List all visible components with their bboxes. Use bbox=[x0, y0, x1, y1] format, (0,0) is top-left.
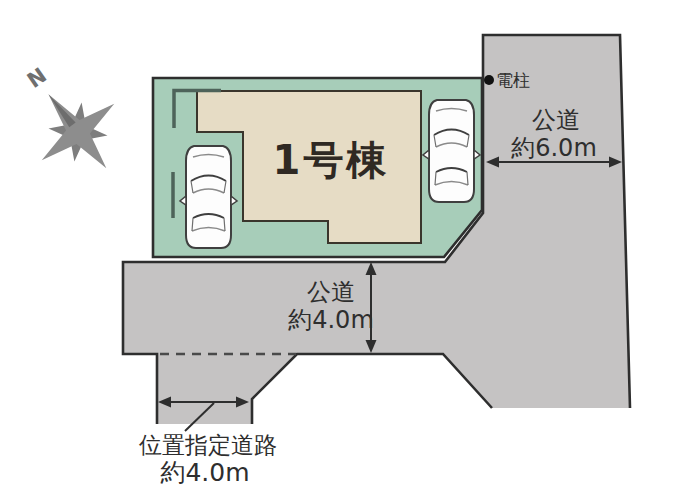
road-designated-width: 約4.0m bbox=[159, 458, 249, 487]
road-south-label: 公道 bbox=[307, 278, 355, 306]
utility-pole-dot bbox=[484, 75, 494, 85]
site-plan: 電柱 公道 約6.0m 公道 約4.0m 位置指定道路 約4.0m 1号棟 bbox=[0, 0, 685, 497]
road-east-label: 公道 bbox=[532, 106, 580, 134]
car-right-icon bbox=[423, 100, 480, 202]
utility-pole-label: 電柱 bbox=[496, 70, 530, 90]
road-designated-label: 位置指定道路 bbox=[138, 432, 277, 458]
road-east-width: 約6.0m bbox=[510, 134, 597, 162]
compass-north-label: N bbox=[23, 63, 51, 93]
road-south-width: 約4.0m bbox=[287, 306, 374, 334]
site-plan-drawing: 電柱 公道 約6.0m 公道 約4.0m 位置指定道路 約4.0m 1号棟 bbox=[0, 0, 685, 497]
car-left-icon bbox=[180, 146, 237, 248]
building-1-label: 1号棟 bbox=[273, 137, 390, 183]
